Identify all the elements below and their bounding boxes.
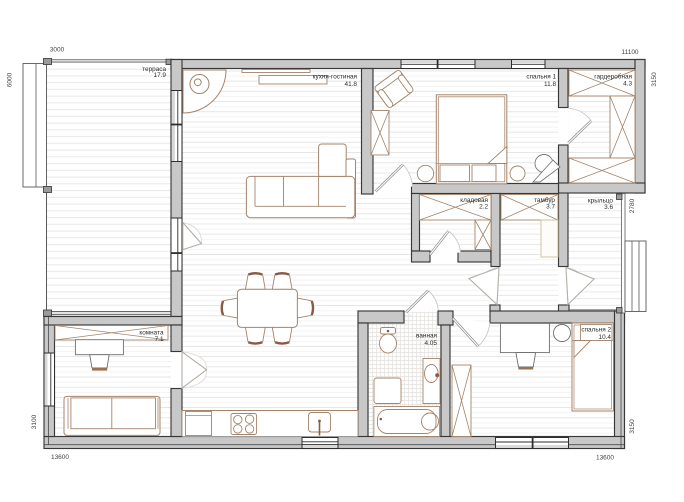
svg-text:3150: 3150 [629, 419, 636, 434]
svg-text:13600: 13600 [596, 455, 614, 462]
svg-text:41.8: 41.8 [345, 81, 358, 88]
svg-text:3100: 3100 [31, 414, 38, 429]
svg-text:10.4: 10.4 [599, 334, 612, 341]
svg-text:6000: 6000 [7, 72, 14, 87]
svg-text:3000: 3000 [50, 47, 65, 54]
svg-text:4.05: 4.05 [425, 340, 438, 347]
svg-text:спальня 2: спальня 2 [581, 327, 611, 334]
svg-text:спальня 1: спальня 1 [526, 74, 556, 81]
svg-text:3150: 3150 [651, 72, 658, 87]
svg-text:кухня-гостиная: кухня-гостиная [313, 74, 358, 81]
svg-text:2.2: 2.2 [479, 203, 488, 210]
svg-text:3.6: 3.6 [604, 204, 613, 211]
svg-text:3.7: 3.7 [546, 203, 555, 210]
svg-text:4.3: 4.3 [623, 81, 632, 88]
svg-text:13600: 13600 [51, 454, 69, 461]
svg-text:11100: 11100 [621, 49, 638, 56]
svg-text:11.8: 11.8 [544, 81, 556, 88]
svg-text:7.1: 7.1 [155, 336, 164, 343]
svg-text:17.9: 17.9 [154, 72, 167, 79]
svg-text:2780: 2780 [629, 198, 636, 213]
svg-text:гардеробная: гардеробная [594, 73, 632, 81]
svg-text:ванная: ванная [416, 332, 437, 339]
